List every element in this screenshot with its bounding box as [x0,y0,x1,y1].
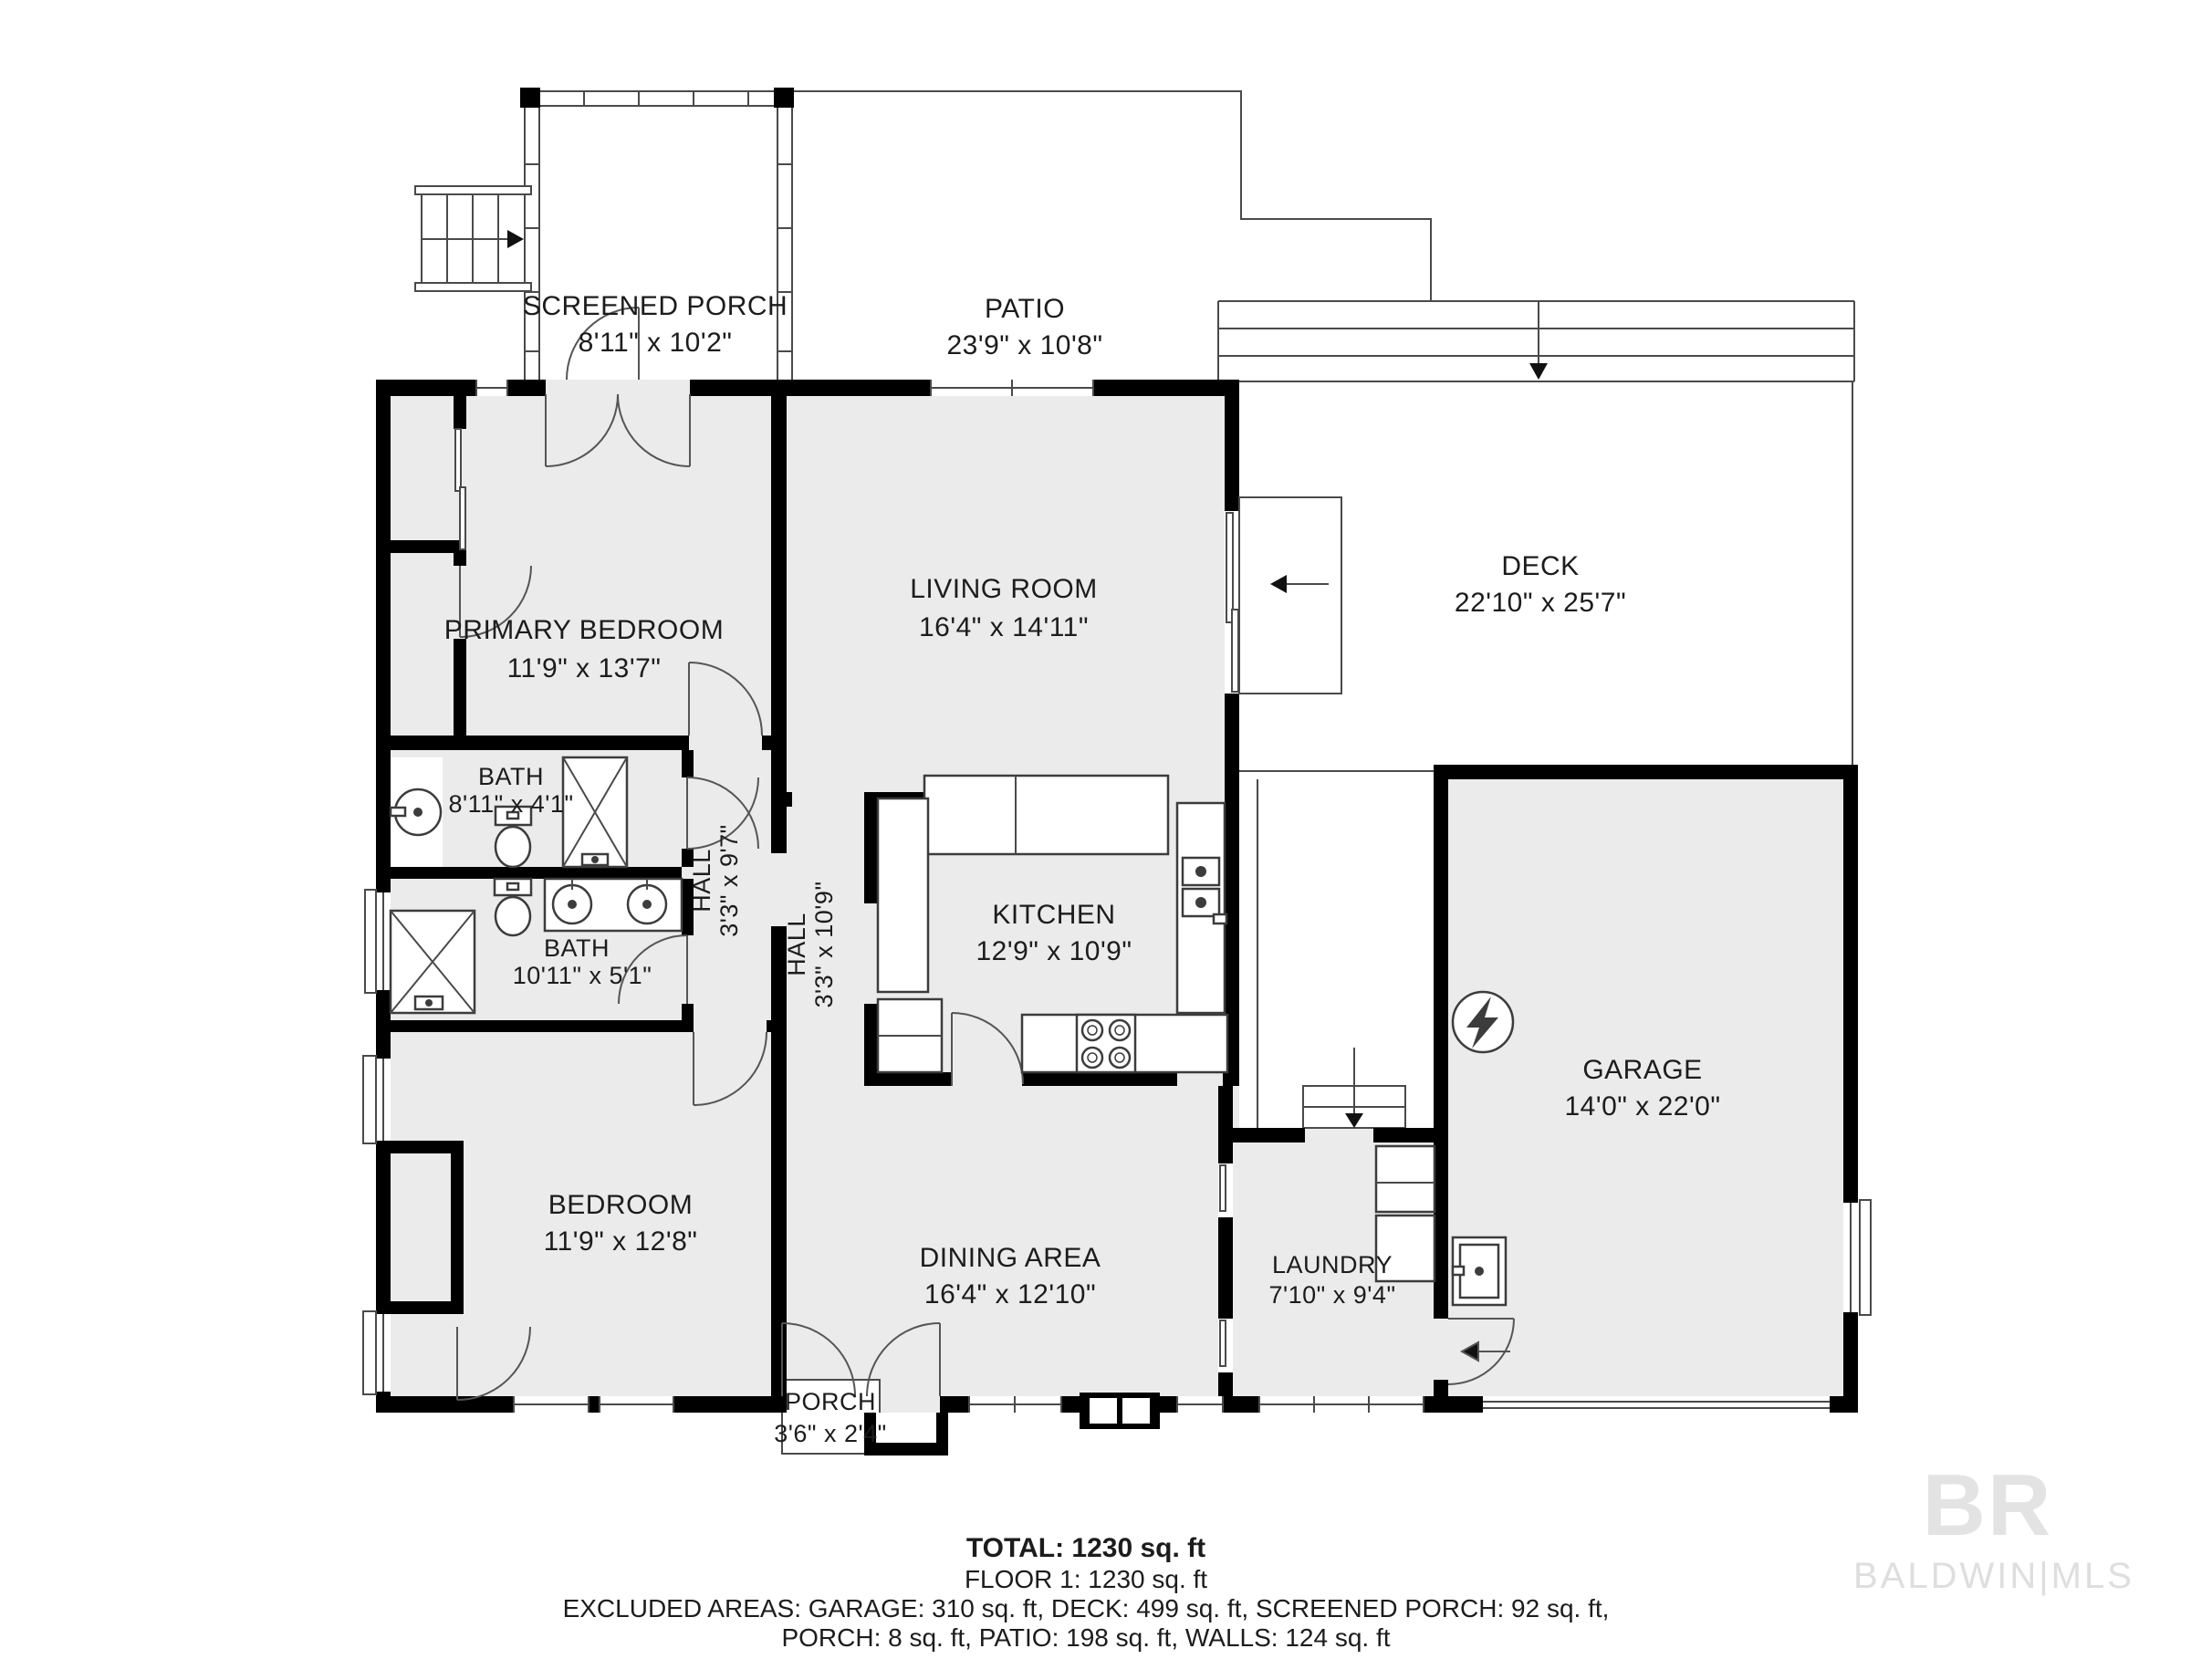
sink-fixture [391,757,443,867]
label-bath-top-dims: 8'11" x 4'1" [448,790,573,818]
deck-steps [1218,301,1854,381]
label-bedroom: BEDROOM [548,1190,694,1220]
utility-sink-fixture [1453,1237,1506,1305]
label-garage-dims: 14'0" x 22'0" [1564,1091,1720,1122]
label-deck-dims: 22'10" x 25'7" [1455,588,1626,618]
floorplan-page: SCREENED PORCH 8'11" x 10'2" PATIO 23'9"… [0,0,2212,1659]
label-screened-porch: SCREENED PORCH [523,291,788,321]
floorplan-drawing: SCREENED PORCH 8'11" x 10'2" PATIO 23'9"… [0,0,2212,1659]
window [1259,1396,1424,1413]
garage-door [1483,1396,1830,1413]
excluded-areas-text-line1: EXCLUDED AREAS: GARAGE: 310 sq. ft, DECK… [563,1594,1610,1622]
porch-post [774,88,794,108]
window [363,1311,391,1394]
window [931,380,1093,396]
porch-post [520,88,540,108]
footer-summary: TOTAL: 1230 sq. ft FLOOR 1: 1230 sq. ft … [563,1533,1610,1652]
label-bath-top: BATH [478,763,544,790]
label-screened-porch-dims: 8'11" x 10'2" [579,328,733,358]
label-living-room-dims: 16'4" x 14'11" [919,612,1089,642]
window [969,1396,1061,1413]
toilet-fixture [495,879,531,935]
deck-steps-down-arrow-icon [1529,363,1548,380]
window [476,380,507,396]
window [1843,1200,1871,1315]
window [363,1056,391,1143]
floor-area-text: FLOOR 1: 1230 sq. ft [965,1565,1207,1593]
label-dining-area-dims: 16'4" x 12'10" [924,1279,1096,1309]
label-bedroom-dims: 11'9" x 12'8" [544,1226,698,1257]
label-bath-lower-dims: 10'11" x 5'1" [513,962,652,989]
excluded-areas-text-line2: PORCH: 8 sq. ft, PATIO: 198 sq. ft, WALL… [781,1623,1390,1652]
patio-outline [792,91,1431,301]
label-patio: PATIO [985,294,1065,324]
window [600,1396,673,1413]
label-primary-bedroom-dims: 11'9" x 13'7" [507,653,662,683]
label-laundry-dims: 7'10" x 9'4" [1268,1281,1395,1309]
shower-fixture [391,911,475,1013]
label-primary-bedroom: PRIMARY BEDROOM [444,615,724,645]
label-hall-upper-dims: 3'3" x 9'7" [715,824,743,937]
label-kitchen: KITCHEN [992,900,1115,930]
pocket-door [1218,1163,1233,1217]
logo-wordmark: BALDWIN|MLS [1853,1556,2134,1596]
label-garage: GARAGE [1582,1055,1702,1085]
label-kitchen-dims: 12'9" x 10'9" [976,936,1132,966]
label-laundry: LAUNDRY [1272,1251,1393,1278]
baldwin-mls-logo: BR BALDWIN|MLS [1853,1456,2134,1596]
label-hall-upper: HALL [688,849,715,913]
total-area-text: TOTAL: 1230 sq. ft [966,1533,1205,1563]
electrical-panel-icon [1453,992,1513,1052]
label-hall-lower: HALL [783,913,810,976]
kitchen-sink-fixture [1183,858,1226,923]
label-patio-dims: 23'9" x 10'8" [946,330,1102,360]
label-porch: PORCH [785,1388,876,1415]
deck-slider-door [1225,497,1341,694]
vanity-fixture [545,879,682,931]
window [1177,1396,1223,1413]
label-living-room: LIVING ROOM [910,574,1098,604]
label-hall-lower-dims: 3'3" x 10'9" [810,881,838,1007]
stove-fixture [1077,1015,1135,1072]
entry-stairs [415,186,531,291]
pocket-door [1218,1319,1233,1372]
window [514,1396,589,1413]
window [365,890,391,993]
label-dining-area: DINING AREA [920,1243,1101,1273]
laundry-entry-steps [1303,1048,1405,1128]
label-deck: DECK [1501,551,1579,581]
label-porch-dims: 3'6" x 2'4" [774,1420,887,1447]
logo-monogram: BR [1923,1456,2053,1554]
label-bath-lower: BATH [544,934,610,962]
